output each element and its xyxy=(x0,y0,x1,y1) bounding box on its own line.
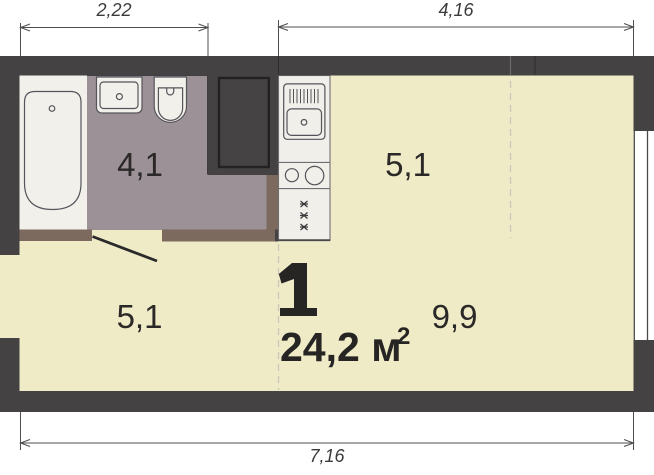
svg-text:4,1: 4,1 xyxy=(117,146,163,183)
svg-text:2,22: 2,22 xyxy=(95,0,131,20)
svg-text:24,2 м: 24,2 м xyxy=(280,324,402,370)
svg-text:2: 2 xyxy=(397,323,410,350)
svg-text:9,9: 9,9 xyxy=(432,298,478,335)
svg-text:5,1: 5,1 xyxy=(117,298,163,335)
svg-text:4,16: 4,16 xyxy=(438,0,474,20)
svg-text:7,16: 7,16 xyxy=(309,446,345,466)
svg-text:5,1: 5,1 xyxy=(385,146,431,183)
